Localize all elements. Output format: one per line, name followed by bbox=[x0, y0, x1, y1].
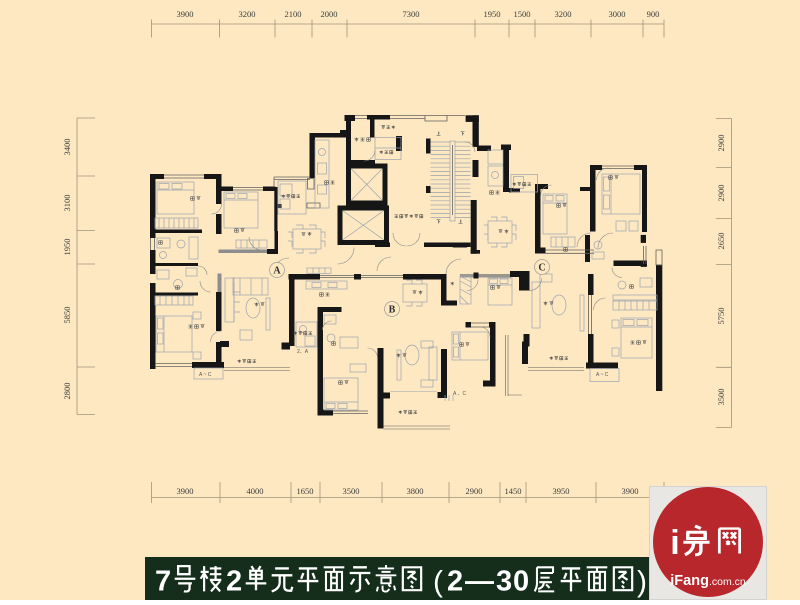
svg-text:7: 7 bbox=[155, 566, 171, 598]
svg-text:1950: 1950 bbox=[62, 239, 72, 256]
svg-text:0: 0 bbox=[513, 566, 529, 598]
svg-text:4000: 4000 bbox=[247, 486, 264, 496]
svg-text:(: ( bbox=[433, 566, 443, 599]
svg-text:3100: 3100 bbox=[62, 195, 72, 212]
svg-text:3: 3 bbox=[496, 566, 512, 598]
svg-text:1950: 1950 bbox=[484, 9, 501, 19]
svg-text:3500: 3500 bbox=[343, 486, 360, 496]
svg-text:1450: 1450 bbox=[505, 486, 522, 496]
svg-text:3000: 3000 bbox=[609, 9, 626, 19]
svg-text:C: C bbox=[538, 263, 545, 274]
svg-text:1500: 1500 bbox=[514, 9, 531, 19]
svg-text:2900: 2900 bbox=[716, 135, 726, 152]
svg-text:3200: 3200 bbox=[239, 9, 256, 19]
svg-text:—: — bbox=[465, 566, 494, 598]
svg-text:A: A bbox=[273, 266, 281, 277]
svg-text:3500: 3500 bbox=[716, 389, 726, 406]
svg-text:2100: 2100 bbox=[285, 9, 302, 19]
svg-text:3200: 3200 bbox=[555, 9, 572, 19]
svg-text:iFang.com.cn: iFang.com.cn bbox=[670, 573, 746, 589]
svg-text:3400: 3400 bbox=[62, 139, 72, 156]
svg-text:2: 2 bbox=[226, 566, 242, 598]
svg-text:7300: 7300 bbox=[403, 9, 420, 19]
svg-text:i: i bbox=[670, 524, 679, 562]
svg-text:900: 900 bbox=[647, 9, 660, 19]
svg-text:A ~ C: A ~ C bbox=[596, 372, 609, 378]
svg-text:): ) bbox=[637, 566, 647, 599]
svg-text:5850: 5850 bbox=[62, 307, 72, 324]
svg-text:B: B bbox=[389, 305, 396, 316]
svg-text:2、A: 2、A bbox=[297, 349, 309, 355]
svg-text:A 、C: A 、C bbox=[453, 391, 466, 397]
svg-text:3900: 3900 bbox=[622, 486, 639, 496]
svg-text:3900: 3900 bbox=[177, 486, 194, 496]
svg-text:3950: 3950 bbox=[553, 486, 570, 496]
svg-text:2800: 2800 bbox=[62, 383, 72, 400]
svg-text:2900: 2900 bbox=[466, 486, 483, 496]
svg-text:2650: 2650 bbox=[716, 233, 726, 250]
svg-text:2000: 2000 bbox=[321, 9, 338, 19]
svg-text:3900: 3900 bbox=[177, 9, 194, 19]
svg-text:3800: 3800 bbox=[407, 486, 424, 496]
svg-text:A ~ C: A ~ C bbox=[199, 372, 212, 378]
svg-text:2900: 2900 bbox=[716, 185, 726, 202]
svg-text:5750: 5750 bbox=[716, 308, 726, 325]
svg-text:1650: 1650 bbox=[297, 486, 314, 496]
svg-text:2: 2 bbox=[447, 566, 463, 598]
